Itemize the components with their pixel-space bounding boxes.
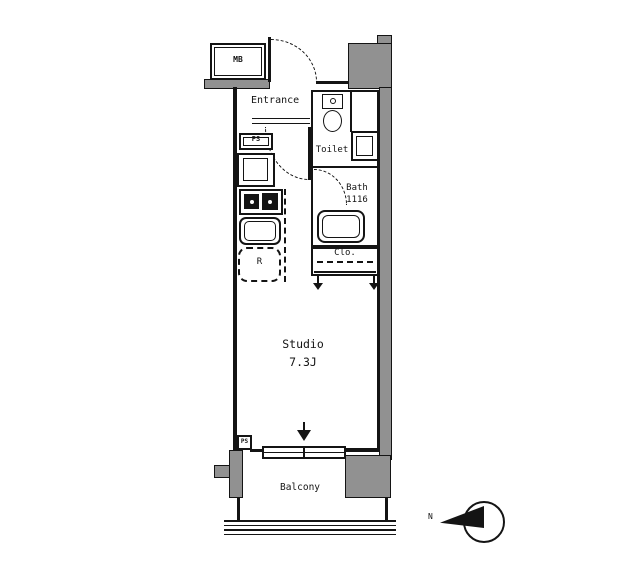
window-mullion [303,447,305,458]
balcony-post-right [385,498,388,522]
wall-left [233,87,237,453]
toilet-partition [350,90,352,132]
structural-column-top-right [348,43,392,89]
balcony-block-right [345,455,391,498]
studio-size-label: 7.3J [253,356,353,369]
balcony-stub-left [214,465,230,478]
entrance-label: Entrance [251,95,299,106]
entrance-step [252,118,310,124]
wall-top-lintel [316,81,349,84]
counter-edge-dashed [284,189,286,282]
balcony-pillar-left [229,450,243,498]
bath-label: Bath [338,184,376,194]
toilet-bowl [323,110,342,132]
wall-right [379,87,392,460]
railing-line-3 [224,529,396,531]
studio-label: Studio [253,338,353,351]
ps-upper-label: PS [239,136,273,144]
wall-top-left [204,79,270,89]
toilet-basin-inner [356,136,373,156]
ps-lower-label: PS [237,439,252,446]
railing-line-2 [224,525,396,527]
toilet-tank-button [330,98,336,104]
railing-line-4 [224,534,396,536]
balcony-post-left [237,498,240,522]
bathtub-inner [322,215,360,238]
compass-north-label: N [428,513,433,522]
bath-size-label: 1116 [338,196,376,206]
stove-burner-left-dot [250,200,254,204]
railing-line-1 [224,520,396,522]
closet-hanger-left-stem [317,276,319,283]
meter-box-label: MB [214,56,262,65]
closet-label: Clo. [311,249,379,259]
window-marker [297,430,311,441]
stove-burner-right-dot [268,200,272,204]
studio-wall-inner-right [377,276,379,448]
balcony-label: Balcony [260,483,340,493]
closet-hanger-left-tip [313,283,323,290]
closet-bottom-line [314,271,376,273]
sink-inner [244,221,276,241]
fridge-label: R [238,258,281,268]
washer-inner [243,158,268,181]
entrance-door-arc [271,39,317,82]
closet-hanger-right-stem [373,276,375,283]
toilet-label: Toilet [310,146,354,156]
window-wall-right [346,448,380,452]
floorplan-canvas: MB Entrance Toilet Bath 1116 Clo. PS [0,0,640,569]
closet-rail [317,261,373,263]
compass-needle-icon [440,506,484,528]
